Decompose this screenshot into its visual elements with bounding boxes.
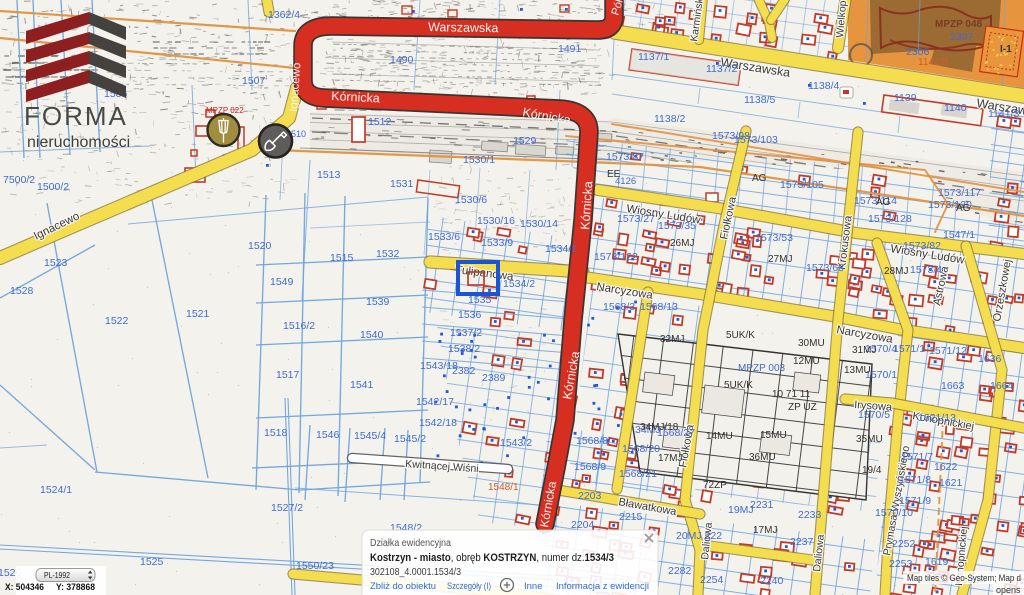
svg-text:1568/8: 1568/8 xyxy=(576,435,608,447)
svg-text:510: 510 xyxy=(291,129,306,139)
svg-text:2389: 2389 xyxy=(482,372,506,384)
svg-text:1573/87: 1573/87 xyxy=(606,151,644,163)
svg-text:1140: 1140 xyxy=(944,102,967,114)
svg-text:1570/10: 1570/10 xyxy=(875,507,913,519)
svg-text:1573/82: 1573/82 xyxy=(903,240,941,252)
svg-text:36MU: 36MU xyxy=(749,452,776,463)
svg-text:1621/13: 1621/13 xyxy=(918,412,956,424)
svg-text:2203: 2203 xyxy=(578,490,602,502)
svg-text:1573/122: 1573/122 xyxy=(594,251,638,263)
svg-text:1568/9: 1568/9 xyxy=(574,461,606,473)
svg-text:MPZP 048: MPZP 048 xyxy=(935,19,982,30)
svg-text:1525: 1525 xyxy=(140,556,164,568)
svg-text:2215: 2215 xyxy=(619,511,643,523)
svg-text:Inne: Inne xyxy=(524,581,543,592)
svg-text:1568/3: 1568/3 xyxy=(603,301,635,313)
svg-text:1513: 1513 xyxy=(317,169,341,181)
svg-text:PL-1992: PL-1992 xyxy=(44,570,70,580)
svg-text:1523: 1523 xyxy=(44,257,68,269)
svg-text:1540: 1540 xyxy=(360,329,384,341)
svg-text:1137/2: 1137/2 xyxy=(706,63,737,75)
svg-text:1530/14: 1530/14 xyxy=(520,218,558,230)
svg-text:17MJ: 17MJ xyxy=(658,453,682,464)
svg-text:1528: 1528 xyxy=(10,285,34,297)
svg-text:1536: 1536 xyxy=(458,309,482,321)
svg-text:1573/27: 1573/27 xyxy=(617,213,655,225)
svg-text:13MU: 13MU xyxy=(844,365,871,376)
svg-text:19MJ: 19MJ xyxy=(728,504,754,516)
svg-text:72ZP: 72ZP xyxy=(703,480,727,491)
svg-text:1573/4: 1573/4 xyxy=(910,264,942,276)
svg-text:1549: 1549 xyxy=(270,276,294,288)
svg-text:1568/21: 1568/21 xyxy=(619,468,657,480)
svg-text:4126: 4126 xyxy=(615,176,636,187)
svg-text:1527/2: 1527/2 xyxy=(271,502,303,514)
svg-text:32MJ: 32MJ xyxy=(660,334,684,345)
svg-text:2307: 2307 xyxy=(950,31,974,43)
svg-text:1548/1: 1548/1 xyxy=(488,482,519,493)
svg-text:1141/3: 1141/3 xyxy=(988,108,1019,120)
svg-text:1568/13: 1568/13 xyxy=(640,301,678,313)
svg-text:1533/6: 1533/6 xyxy=(428,231,460,243)
svg-text:1539: 1539 xyxy=(366,296,390,308)
svg-text:34MJ/18: 34MJ/18 xyxy=(640,422,679,433)
svg-text:1621: 1621 xyxy=(939,477,963,489)
svg-text:2237: 2237 xyxy=(790,536,814,548)
svg-text:1573/53: 1573/53 xyxy=(755,232,793,244)
svg-text:1636: 1636 xyxy=(978,353,1002,365)
svg-text:1512: 1512 xyxy=(368,116,392,128)
svg-text:2240: 2240 xyxy=(760,575,784,587)
svg-text:1573/35: 1573/35 xyxy=(658,220,696,232)
svg-text:2382: 2382 xyxy=(452,365,476,377)
svg-text:1663: 1663 xyxy=(941,380,965,392)
svg-text:1533/9: 1533/9 xyxy=(481,237,513,249)
svg-text:35MU: 35MU xyxy=(856,434,883,445)
svg-text:1571/8: 1571/8 xyxy=(899,474,931,486)
svg-text:1521: 1521 xyxy=(186,308,210,320)
svg-text:1142/8: 1142/8 xyxy=(918,57,948,68)
svg-text:10 71 11: 10 71 11 xyxy=(772,389,811,400)
svg-text:2254: 2254 xyxy=(700,574,724,586)
svg-text:Kostrzyn - miasto, obręb KOSTR: Kostrzyn - miasto, obręb KOSTRZYN, numer… xyxy=(370,552,614,564)
svg-text:1542/17: 1542/17 xyxy=(416,396,454,408)
svg-text:1546: 1546 xyxy=(316,429,340,441)
svg-text:1543/2: 1543/2 xyxy=(500,437,532,449)
svg-text:30MU: 30MU xyxy=(798,338,825,349)
svg-text:15MU: 15MU xyxy=(760,430,787,441)
svg-text:Działka ewidencyjna: Działka ewidencyjna xyxy=(370,538,451,549)
svg-text:1491: 1491 xyxy=(558,43,582,55)
svg-text:31MJ: 31MJ xyxy=(852,345,876,356)
svg-text:5UK/K: 5UK/K xyxy=(726,330,755,341)
svg-text:20MJ 222: 20MJ 222 xyxy=(676,530,722,542)
svg-text:5UK/K: 5UK/K xyxy=(724,380,753,391)
svg-text:1571/1: 1571/1 xyxy=(893,343,925,355)
svg-text:1573/128: 1573/128 xyxy=(868,213,912,225)
svg-text:1542/18: 1542/18 xyxy=(419,417,457,429)
svg-text:1550/23: 1550/23 xyxy=(296,560,334,572)
svg-text:7500/2: 7500/2 xyxy=(3,174,35,186)
svg-text:AG: AG xyxy=(956,203,971,214)
svg-text:AG: AG xyxy=(752,173,767,184)
svg-text:26MJ: 26MJ xyxy=(670,238,694,249)
svg-text:I-1: I-1 xyxy=(1000,44,1012,55)
svg-text:1137/1: 1137/1 xyxy=(638,51,669,63)
svg-text:1545/2: 1545/2 xyxy=(394,433,426,445)
svg-text:1534/2: 1534/2 xyxy=(503,278,535,290)
svg-text:1532: 1532 xyxy=(376,248,400,260)
svg-text:12MU: 12MU xyxy=(793,356,820,367)
svg-text:Y: 378868: Y: 378868 xyxy=(56,582,95,592)
svg-text:X: 504346: X: 504346 xyxy=(5,582,44,592)
svg-text:1573/117: 1573/117 xyxy=(938,187,981,199)
svg-text:1545/4: 1545/4 xyxy=(354,430,386,442)
svg-text:28MJ: 28MJ xyxy=(884,266,908,277)
svg-text:1530/6: 1530/6 xyxy=(455,194,487,206)
svg-text:1568/20: 1568/20 xyxy=(622,443,660,455)
svg-text:2233: 2233 xyxy=(798,509,822,521)
svg-text:14MU: 14MU xyxy=(706,431,733,442)
svg-text:1538/2: 1538/2 xyxy=(448,343,480,355)
svg-text:1571/7: 1571/7 xyxy=(901,451,933,463)
svg-text:1573/68: 1573/68 xyxy=(806,262,844,274)
svg-text:1622: 1622 xyxy=(934,461,958,473)
svg-text:1573/98: 1573/98 xyxy=(712,130,750,142)
svg-text:1537/2: 1537/2 xyxy=(450,327,482,339)
svg-text:1520: 1520 xyxy=(248,240,272,252)
svg-text:1573/105: 1573/105 xyxy=(780,179,824,191)
svg-text:1516/2: 1516/2 xyxy=(283,320,315,332)
svg-text:1541: 1541 xyxy=(350,379,374,391)
svg-text:Informacja z ewidencji: Informacja z ewidencji xyxy=(556,581,649,592)
svg-text:27MJ: 27MJ xyxy=(768,254,792,265)
svg-text:1518: 1518 xyxy=(264,427,288,439)
svg-text:Kórnicka: Kórnicka xyxy=(331,89,380,106)
svg-text:1517: 1517 xyxy=(276,369,300,381)
svg-text:nieruchomości: nieruchomości xyxy=(27,134,130,151)
svg-text:1138/4: 1138/4 xyxy=(808,80,839,92)
svg-text:1664: 1664 xyxy=(990,380,1014,392)
svg-text:1490: 1490 xyxy=(390,54,414,66)
svg-text:2204: 2204 xyxy=(571,519,595,531)
svg-text:1362/4: 1362/4 xyxy=(268,9,300,21)
svg-text:1500/2: 1500/2 xyxy=(37,181,69,193)
svg-text:1570/5: 1570/5 xyxy=(858,409,890,421)
svg-text:17MJ: 17MJ xyxy=(753,525,777,536)
svg-text:ZP UZ: ZP UZ xyxy=(788,402,817,413)
svg-text:1529: 1529 xyxy=(513,135,537,147)
svg-text:1522: 1522 xyxy=(105,315,129,327)
svg-text:19/4: 19/4 xyxy=(862,465,882,476)
svg-text:2253: 2253 xyxy=(889,558,913,570)
svg-text:2282: 2282 xyxy=(668,565,692,577)
svg-text:1530/1: 1530/1 xyxy=(463,154,495,166)
svg-text:1138/2: 1138/2 xyxy=(654,113,685,125)
svg-text:Szczegóły (I): Szczegóły (I) xyxy=(447,581,491,592)
svg-text:1534/1: 1534/1 xyxy=(545,243,577,255)
svg-text:1524/1: 1524/1 xyxy=(40,484,72,496)
svg-text:2252: 2252 xyxy=(892,538,916,550)
svg-text:1571/9: 1571/9 xyxy=(899,495,931,507)
svg-text:1547/1: 1547/1 xyxy=(943,229,975,241)
svg-text:1507: 1507 xyxy=(242,75,266,87)
svg-text:AG: AG xyxy=(876,197,891,208)
svg-text:1571/12: 1571/12 xyxy=(929,345,967,357)
svg-text:FORMA: FORMA xyxy=(24,101,128,131)
svg-text:1530/16: 1530/16 xyxy=(477,215,515,227)
svg-text:opens: opens xyxy=(996,585,1021,595)
svg-text:1619: 1619 xyxy=(925,556,949,568)
svg-text:1139: 1139 xyxy=(894,92,917,104)
svg-text:1531: 1531 xyxy=(390,178,414,190)
svg-text:1138/5: 1138/5 xyxy=(744,94,775,106)
svg-text:Zbliż do obiektu: Zbliż do obiektu xyxy=(370,581,436,592)
svg-text:MPZP 003: MPZP 003 xyxy=(738,363,785,374)
svg-text:Map tiles © Geo-System; Map d: Map tiles © Geo-System; Map d xyxy=(907,573,1021,583)
svg-text:1515: 1515 xyxy=(330,252,354,264)
svg-text:302108_4.0001.1534/3: 302108_4.0001.1534/3 xyxy=(370,566,461,578)
svg-text:Warszawska: Warszawska xyxy=(428,20,499,35)
